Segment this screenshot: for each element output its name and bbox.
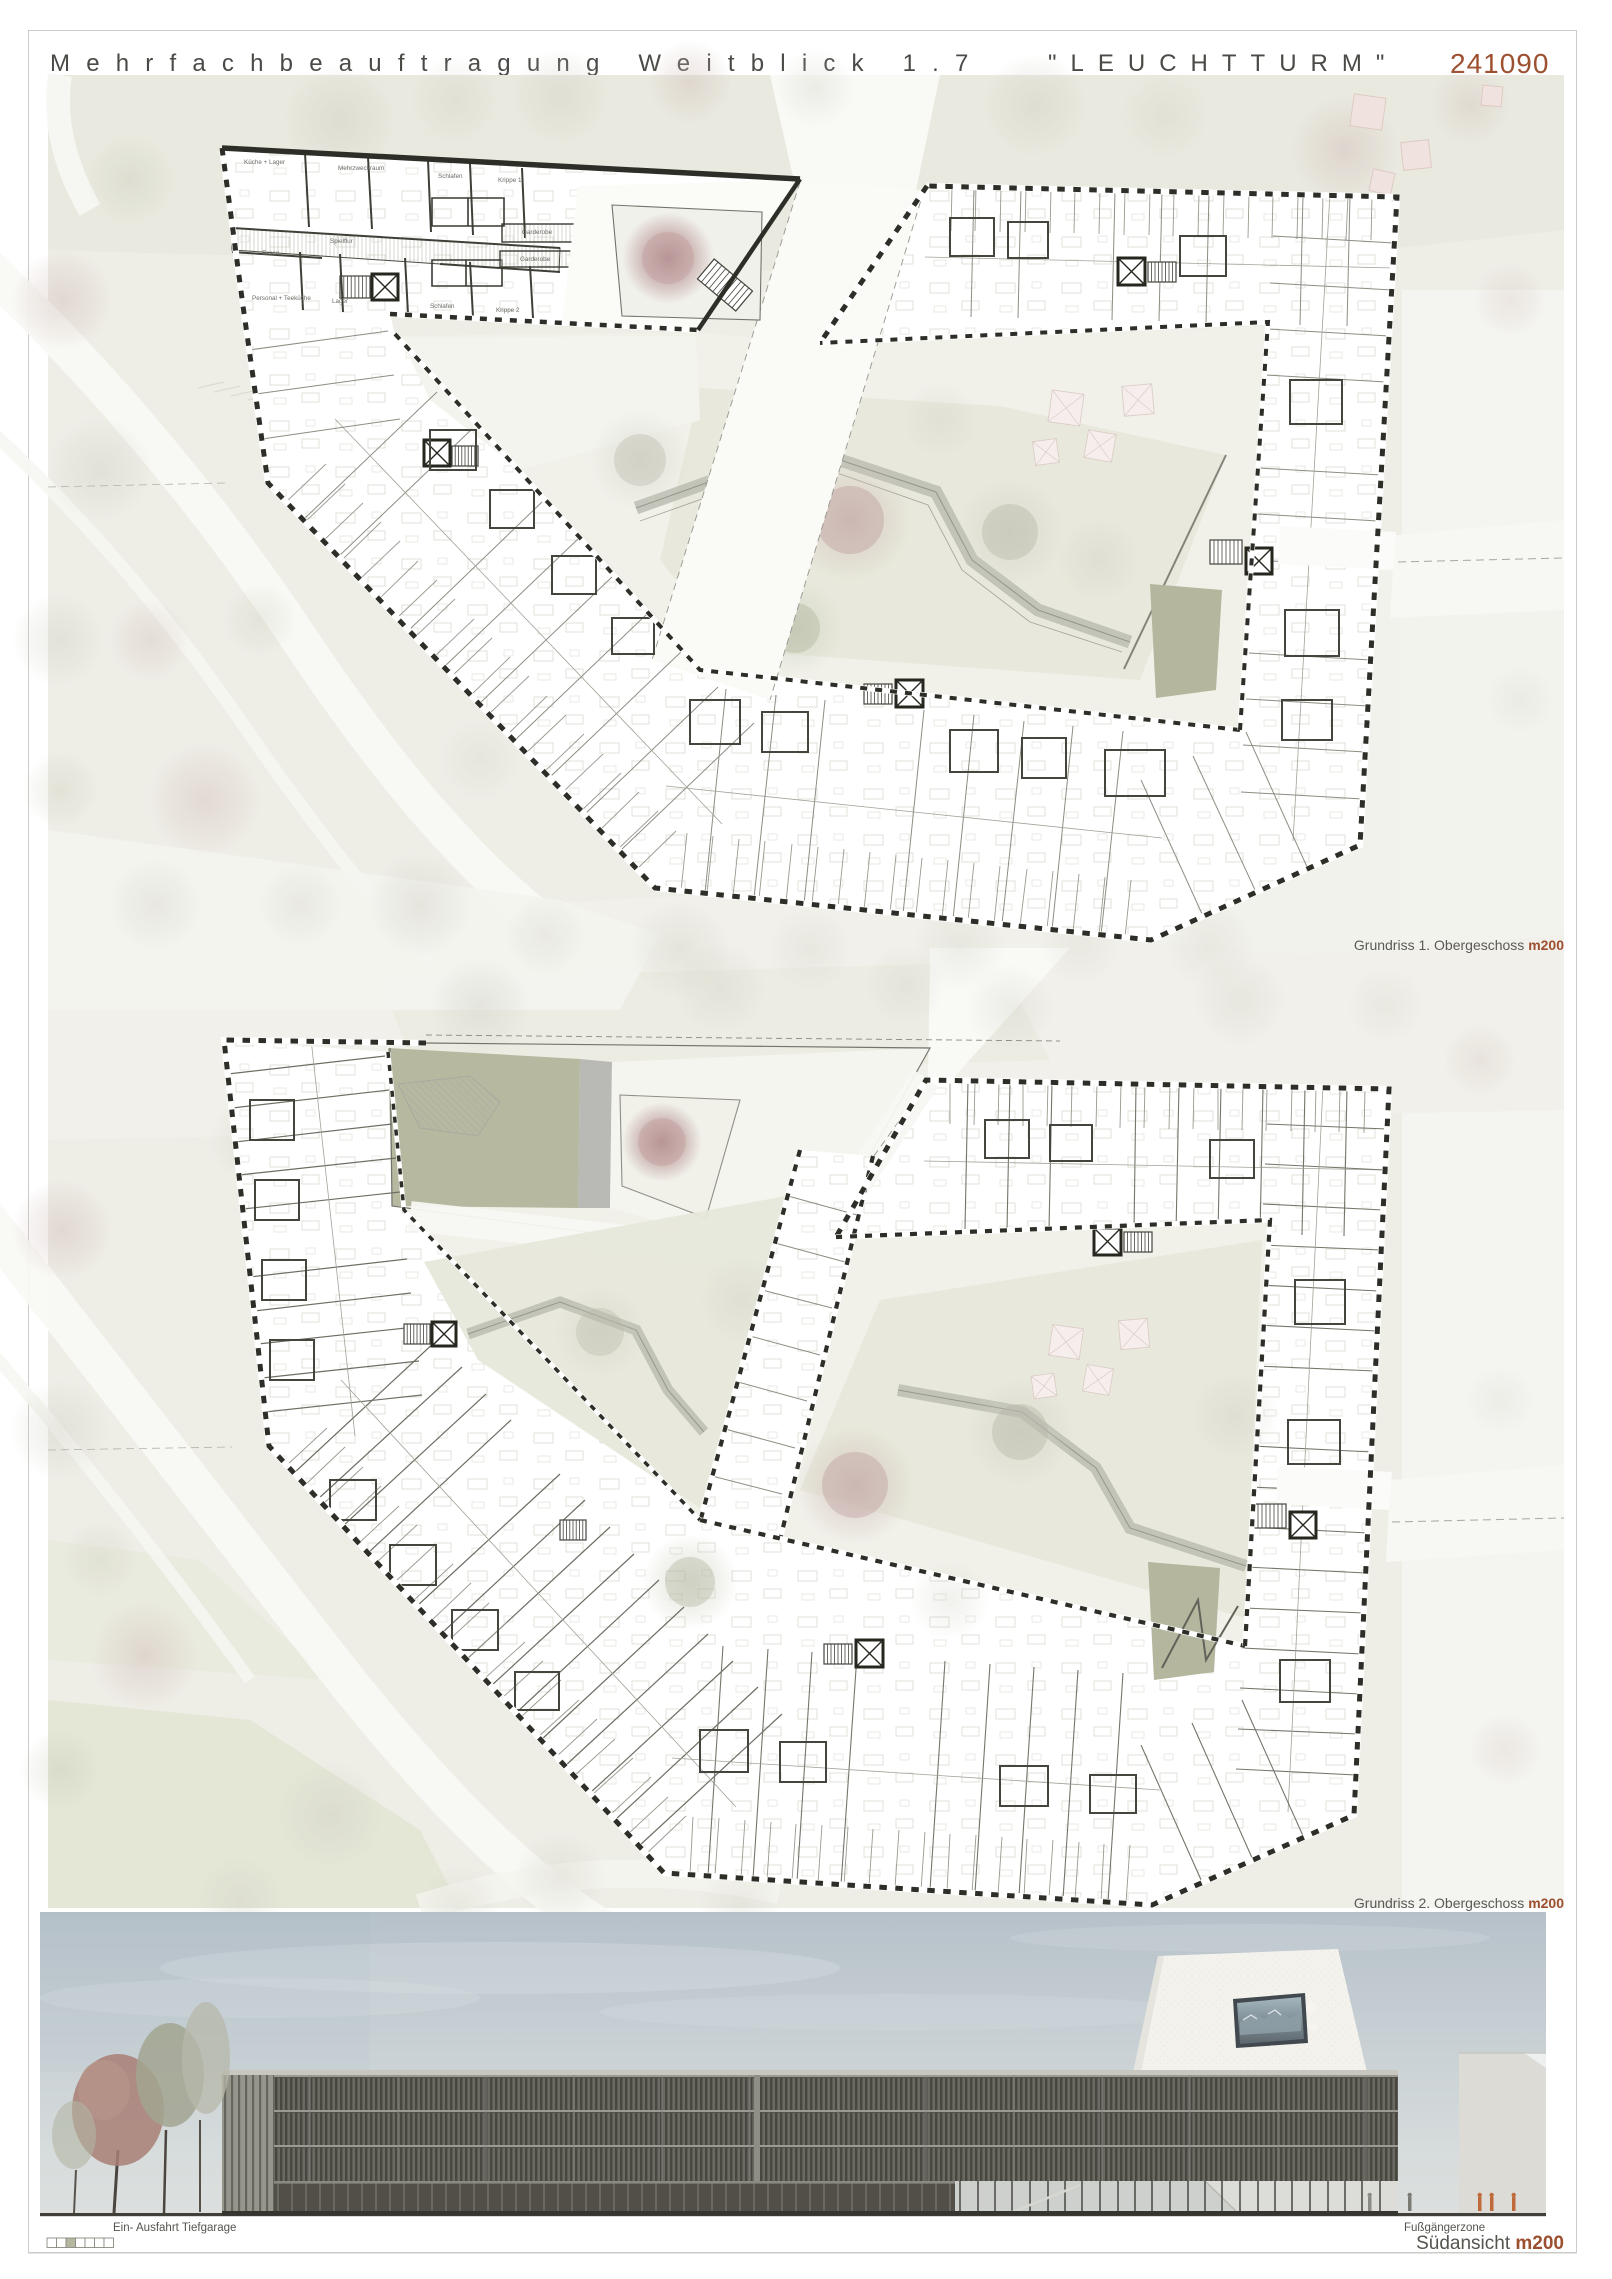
svg-text:Südansicht m200: Südansicht m200 [1416, 2233, 1564, 2254]
svg-text:Essen: Essen [262, 250, 280, 257]
svg-text:Garderobe: Garderobe [520, 256, 551, 263]
svg-text:Garderobe: Garderobe [522, 229, 553, 236]
svg-text:Krippe 1: Krippe 1 [498, 177, 522, 184]
svg-text:Küche + Lager: Küche + Lager [244, 159, 285, 166]
svg-text:Grundriss 1. Obergeschoss m200: Grundriss 1. Obergeschoss m200 [1354, 937, 1564, 953]
svg-text:Mehrzweckraum: Mehrzweckraum [338, 165, 384, 172]
svg-text:Spielflur: Spielflur [330, 238, 353, 245]
svg-text:Grundriss 2. Obergeschoss m200: Grundriss 2. Obergeschoss m200 [1354, 1895, 1564, 1911]
svg-text:Schlafen: Schlafen [430, 303, 455, 310]
svg-text:"LEUCHTTURM": "LEUCHTTURM" [1048, 50, 1398, 77]
svg-text:Schlafen: Schlafen [438, 173, 463, 180]
svg-text:Krippe 2: Krippe 2 [496, 307, 520, 314]
svg-text:Lager: Lager [332, 298, 348, 305]
svg-text:Personal + Teeküche: Personal + Teeküche [252, 295, 311, 302]
svg-text:Ein- Ausfahrt Tiefgarage: Ein- Ausfahrt Tiefgarage [113, 2222, 236, 2234]
